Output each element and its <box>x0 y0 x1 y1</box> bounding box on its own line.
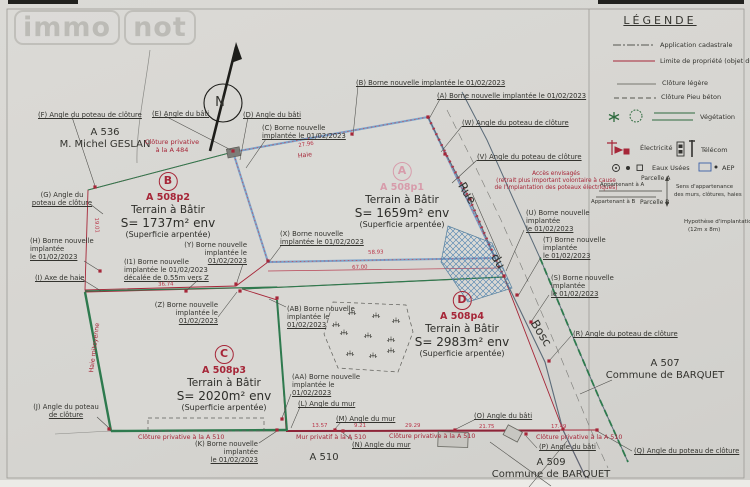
parcel-title: Terrain à Bâtir <box>355 194 449 206</box>
parcel-letter: B <box>159 172 178 191</box>
dimension-label: 29.29 <box>405 423 420 429</box>
legend-item-label: Électricité <box>640 145 672 153</box>
dimension-label: 58.93 <box>368 249 384 256</box>
borne-marker <box>184 289 187 292</box>
parcel-letter: D <box>453 291 472 310</box>
callout-i: (I) Axe de haie <box>35 274 84 282</box>
borne-marker <box>107 427 110 430</box>
borne-marker <box>595 428 598 431</box>
callout-p: (P) Angle du bâti <box>539 443 596 451</box>
borne-marker <box>275 296 278 299</box>
borne-marker <box>426 115 429 118</box>
electricity-pole-icon <box>607 140 629 155</box>
note-mur-privatif: Mur privatif à la A 510 <box>296 434 366 442</box>
dimension-label: 36.74 <box>158 281 174 288</box>
legend-ownership-label: des murs, clôtures, haies <box>674 192 742 198</box>
borne-marker <box>333 428 336 431</box>
parcel-note: (Superficie arpentée) <box>121 230 215 239</box>
dimension-label: 21.75 <box>479 424 494 430</box>
callout-h: (H) Borne nouvelleimplantéele 01/02/2023 <box>30 237 94 261</box>
borne-marker <box>98 269 101 272</box>
dimension-label: 17.49 <box>551 424 566 430</box>
legend-item-label: AEP <box>722 165 734 173</box>
borne-marker <box>341 429 344 432</box>
neighbor-a509: A 509Commune de BARQUET <box>492 457 611 481</box>
legend-ownership-label: Appartenant à A <box>600 182 644 188</box>
borne-marker <box>238 289 241 292</box>
callout-o: (O) Angle du bâti <box>474 412 532 420</box>
aep-icon <box>699 163 718 171</box>
dimension-label: 67.00 <box>352 264 368 271</box>
dimension-label: 9.21 <box>354 423 366 429</box>
legend-ownership-label: Parcelle A <box>641 175 670 182</box>
callout-x: (X) Borne nouvelleimplantée le 01/02/202… <box>280 230 364 246</box>
note-cloture-a484: Clôture privativeà la A 484 <box>145 139 199 155</box>
callout-g: (G) Angle dupoteau de clôture <box>32 191 92 207</box>
borne-marker <box>266 259 269 262</box>
borne-marker <box>502 274 505 277</box>
callout-n: (N) Angle du mur <box>352 441 411 449</box>
legend-item-label: Application cadastrale <box>660 42 732 50</box>
callout-s: (S) Borne nouvelleimplantéele 01/02/2023 <box>551 274 614 298</box>
callout-m: (M) Angle du mur <box>336 415 395 423</box>
immonot-logo-immo: immo <box>14 10 120 45</box>
neighbor-a507: A 507Commune de BARQUET <box>606 358 725 382</box>
note-cloture-left: Clôture privative à la A 510 <box>138 434 224 442</box>
legend-title: LÉGENDE <box>623 14 696 27</box>
conifer-icon <box>609 112 619 122</box>
tree-icon <box>630 110 642 122</box>
borne-marker <box>93 185 96 188</box>
parcel-area: S= 2020m² env <box>177 389 271 403</box>
callout-u: (U) Borne nouvelleimplantéele 01/02/2023 <box>526 209 590 233</box>
legend-item-label: Eaux Usées <box>652 165 690 173</box>
parcel-title: Terrain à Bâtir <box>415 323 509 335</box>
parcel-ref: A 508p2 <box>121 192 215 203</box>
callout-v: (V) Angle du poteau de clôture <box>477 153 582 161</box>
legend-hypothesis-label: (12m x 8m) <box>688 227 720 234</box>
parcel-area: S= 2983m² env <box>415 335 509 349</box>
parcel-b-info: BA 508p2Terrain à BâtirS= 1737m² env(Sup… <box>121 172 215 239</box>
legend-item-label: Clôture Pieu béton <box>661 94 721 102</box>
legend-ownership-label: Sens d'appartenance <box>676 184 733 190</box>
callout-z: (Z) Borne nouvelleimplantée le01/02/2023 <box>155 301 218 325</box>
borne-marker <box>515 293 518 296</box>
borne-marker <box>280 417 283 420</box>
dimension-label: 19.01 <box>92 217 99 233</box>
label-a510: A 510 <box>309 452 338 464</box>
note-cloture-right: Clôture privative à la A 510 <box>536 434 622 442</box>
note-cloture-mid: Clôture privative à la A 510 <box>389 433 475 441</box>
legend-item-label: Clôture légère <box>662 80 708 88</box>
borne-marker <box>275 428 278 431</box>
parcel-title: Terrain à Bâtir <box>121 204 215 216</box>
callout-b-borne: (B) Borne nouvelle implantée le 01/02/20… <box>356 79 505 87</box>
callout-q: (Q) Angle du poteau de clôture <box>634 447 739 455</box>
borne-marker <box>524 432 527 435</box>
callout-ab: (AB) Borne nouvelleimplantée le01/02/202… <box>287 305 355 329</box>
callout-c: (C) Borne nouvelleimplantée le 01/02/202… <box>262 124 346 140</box>
callout-t: (T) Borne nouvelleimplantéele 01/02/2023 <box>543 236 606 260</box>
immonot-watermark: immo not <box>14 10 196 45</box>
borne-marker <box>350 132 353 135</box>
callout-l: (L) Angle du mur <box>298 400 355 408</box>
callout-f: (F) Angle du poteau de clôture <box>38 111 142 119</box>
plan-drawing <box>0 0 750 487</box>
callout-e: (E) Angle du bâti <box>152 110 209 118</box>
parcel-letter: A <box>393 162 412 181</box>
scanned-survey-plan: immo not LÉGENDE N(F) Angle du poteau de… <box>0 0 750 487</box>
immonot-logo-not: not <box>124 10 196 45</box>
callout-d: (D) Angle du bâti <box>243 111 301 119</box>
legend-item-label: Végétation <box>700 114 735 122</box>
callout-y: (Y) Borne nouvelleimplantée le01/02/2023 <box>184 241 247 265</box>
neighbor-a536: A 536M. Michel GESLAN <box>60 127 151 151</box>
borne-marker <box>443 152 446 155</box>
north-label: N <box>215 95 225 111</box>
parcel-ref: A 508p3 <box>177 365 271 376</box>
legend-item-label: Limite de propriété (objet du <box>660 58 750 66</box>
parcel-a-info: AA 508p1Terrain à BâtirS= 1659m² env(Sup… <box>355 162 449 229</box>
parcel-ref: A 508p1 <box>355 182 449 193</box>
legend-item-label: Télécom <box>701 147 728 155</box>
parcel-note: (Superficie arpentée) <box>177 403 271 412</box>
legend-ownership-label: Parcelle B <box>640 199 669 206</box>
borne-marker <box>547 359 550 362</box>
borne-marker <box>234 282 237 285</box>
parcel-letter: C <box>215 345 234 364</box>
borne-marker <box>453 428 456 431</box>
parcel-title: Terrain à Bâtir <box>177 377 271 389</box>
callout-k: (K) Borne nouvelleimplantéele 01/02/2023 <box>195 440 258 464</box>
parcel-note: (Superficie arpentée) <box>415 349 509 358</box>
dimension-label: 13.57 <box>312 423 327 429</box>
borne-marker <box>231 149 234 152</box>
legend-ownership-label: Appartenant à B <box>591 199 635 205</box>
callout-j: (J) Angle du poteaude clôture <box>33 403 99 419</box>
callout-a-borne: (A) Borne nouvelle implantée le 01/02/20… <box>437 92 586 100</box>
parcel-area: S= 1659m² env <box>355 206 449 220</box>
callout-r: (R) Angle du poteau de clôture <box>573 330 678 338</box>
parcel-area: S= 1737m² env <box>121 216 215 230</box>
callout-aa: (AA) Borne nouvelleimplantée le01/02/202… <box>292 373 360 397</box>
parcel-d-info: DA 508p4Terrain à BâtirS= 2983m² env(Sup… <box>415 291 509 358</box>
parcel-ref: A 508p4 <box>415 311 509 322</box>
callout-w: (W) Angle du poteau de clôture <box>462 119 569 127</box>
parcel-note: (Superficie arpentée) <box>355 220 449 229</box>
parcel-c-info: CA 508p3Terrain à BâtirS= 2020m² env(Sup… <box>177 345 271 412</box>
telecom-pole-icon <box>677 140 695 157</box>
legend-hypothesis-label: Hypothèse d'implantation <box>684 219 750 226</box>
